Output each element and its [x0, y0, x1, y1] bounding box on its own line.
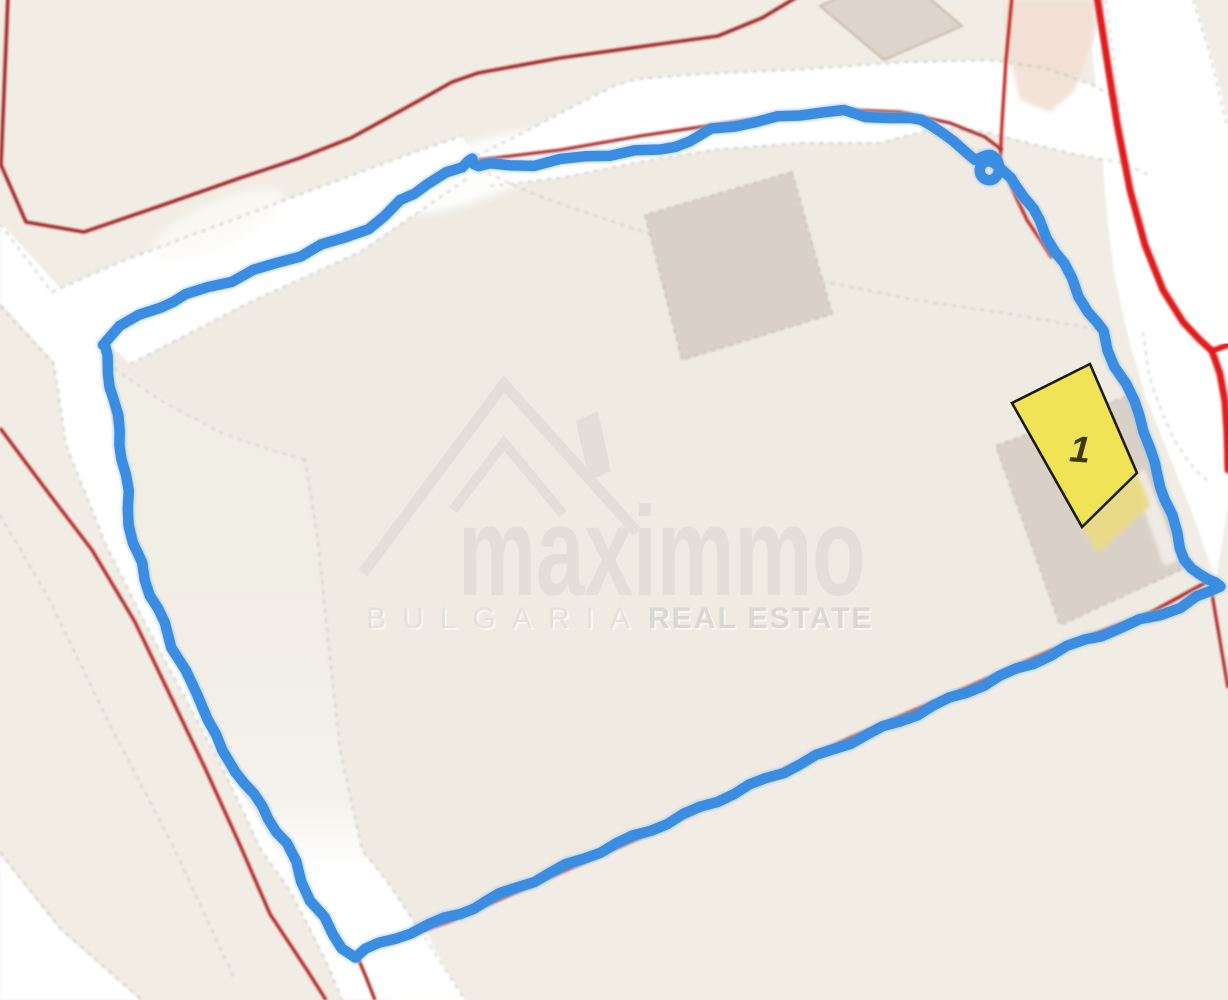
svg-text:BULGARIA: BULGARIA	[366, 602, 646, 635]
svg-text:REAL ESTATE: REAL ESTATE	[648, 602, 873, 635]
svg-text:1: 1	[1068, 428, 1091, 470]
